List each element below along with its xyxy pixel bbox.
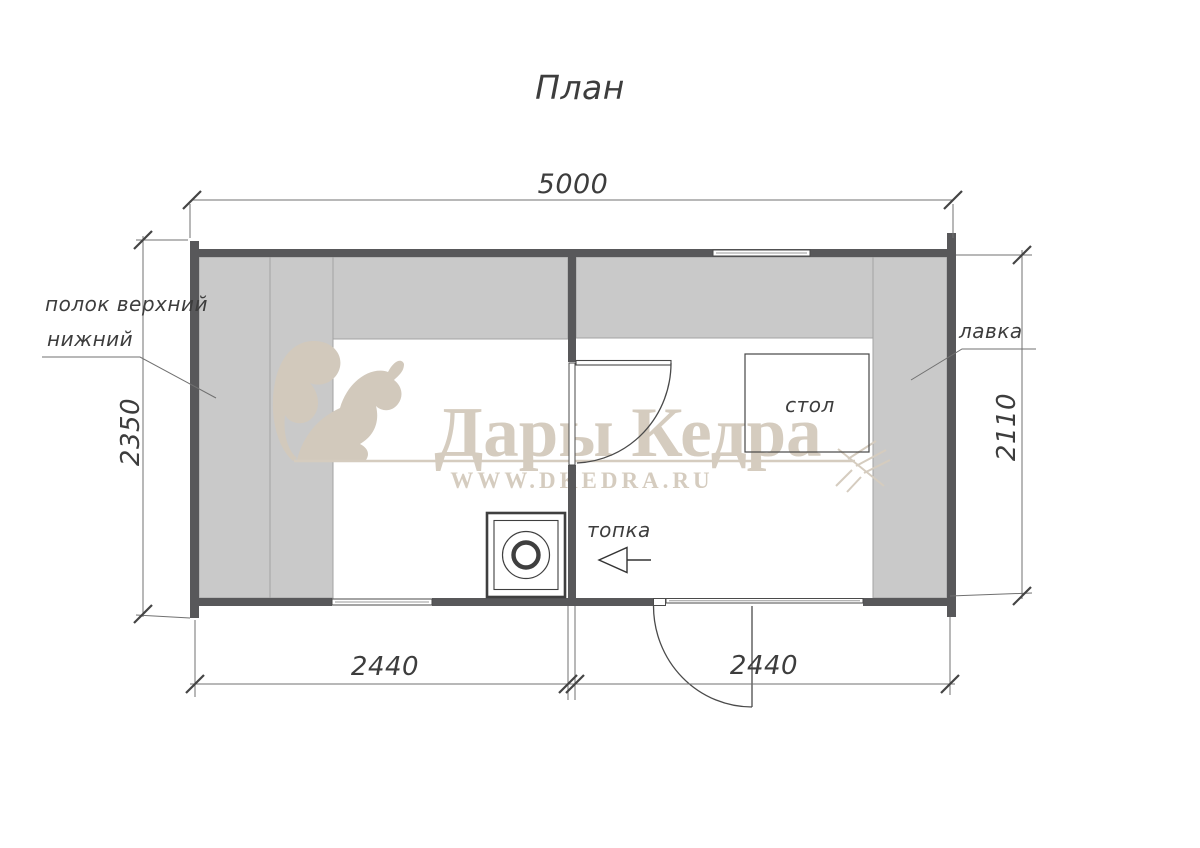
label-firebox: топка — [587, 518, 651, 542]
label-bench: лавка — [959, 319, 1023, 343]
bottom-wall-left — [199, 598, 332, 606]
shelf-lower-band — [199, 257, 270, 598]
right-wall — [947, 233, 956, 617]
label-shelf-lower: нижний — [47, 327, 133, 351]
top-platform-left-room — [333, 257, 568, 339]
floor-plan-canvas: Дары Кедра WWW.DKEDRA.RU — [0, 0, 1200, 848]
partition-wall-top — [568, 257, 576, 362]
stove-inner-box — [494, 521, 558, 590]
dim-right-value: 2110 — [992, 347, 1022, 507]
label-shelf-upper: полок верхний — [45, 292, 208, 316]
watermark-brand-text: Дары Кедра — [434, 394, 821, 472]
bottom-wall-right — [863, 598, 947, 606]
partition-door-frame — [569, 363, 575, 465]
firebox-arrow-icon — [599, 548, 651, 573]
dim-top-value: 5000 — [493, 169, 653, 200]
top-wall — [199, 249, 947, 257]
partition-wall-bottom — [568, 465, 576, 598]
bench-band — [873, 257, 947, 598]
door-threshold-box — [654, 599, 666, 606]
stove — [487, 513, 565, 597]
top-platform-right-room — [576, 257, 873, 338]
label-table: стол — [770, 393, 850, 417]
dim-left-value: 2350 — [116, 352, 146, 512]
dim-bottom-left-value: 2440 — [305, 652, 465, 682]
watermark-site-text: WWW.DKEDRA.RU — [450, 468, 713, 493]
bottom-wall-middle — [432, 598, 653, 606]
partition-door-leaf — [576, 361, 671, 366]
dim-bottom-right-value: 2440 — [684, 651, 844, 681]
page-title: План — [480, 68, 680, 107]
